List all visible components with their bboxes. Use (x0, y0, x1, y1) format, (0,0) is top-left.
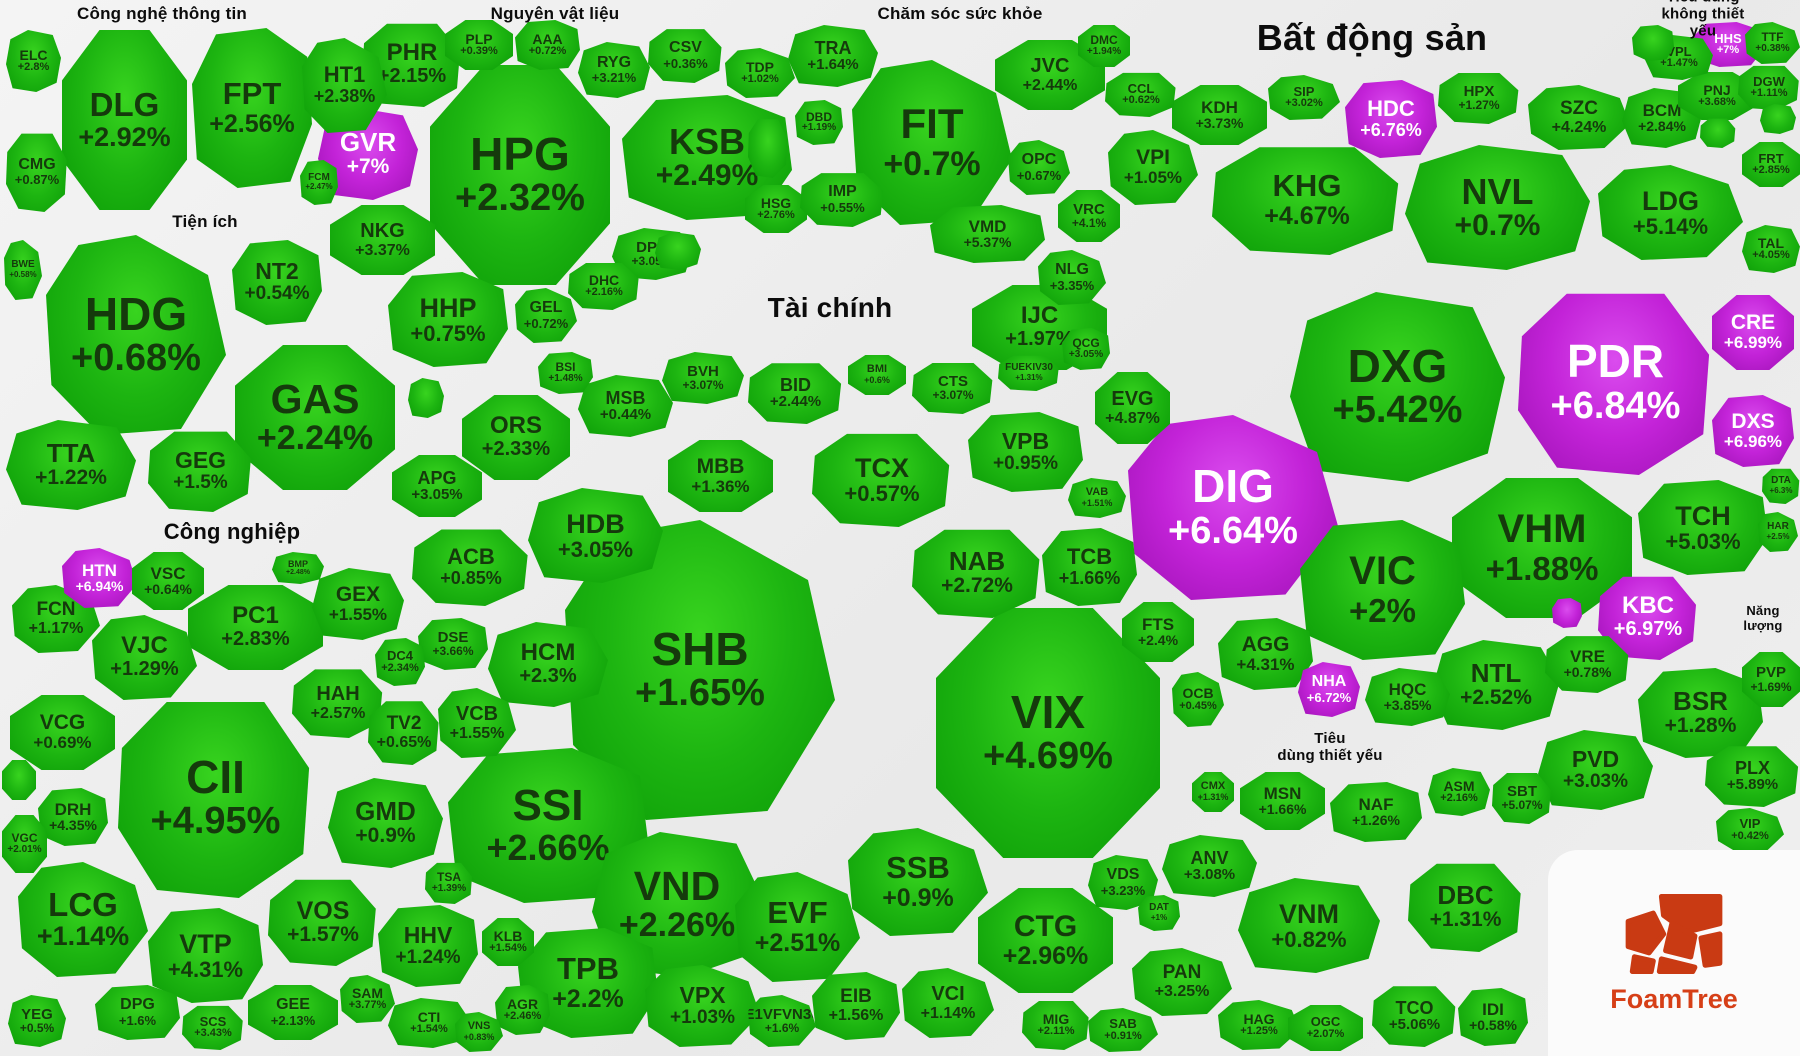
cell-change-pct: +2.84% (1638, 119, 1686, 134)
cell-NVL[interactable]: NVL+0.7% (1405, 145, 1590, 270)
cell-ticker: AAA (532, 32, 562, 47)
cell-change-pct: +1.02% (741, 74, 779, 86)
cell-change-pct: +1.31% (1430, 909, 1502, 932)
cell-change-pct: +7% (1717, 45, 1739, 57)
cell-change-pct: +1.5% (173, 473, 227, 494)
cell-OCB[interactable]: OCB+0.45% (1172, 672, 1224, 727)
cell-ticker: TTF (1762, 31, 1784, 43)
cell-change-pct: +0.42% (1731, 831, 1769, 843)
cell-TV2[interactable]: TV2+0.65% (368, 700, 440, 765)
cell-change-pct: +2.96% (1003, 943, 1089, 970)
cell-RYG[interactable]: RYG+3.21% (578, 42, 650, 98)
cell-change-pct: +4.87% (1105, 410, 1160, 427)
cell-ticker: GMD (355, 798, 416, 825)
cell-change-pct: +0.87% (15, 173, 59, 187)
cell-DBC[interactable]: DBC+1.31% (1408, 862, 1523, 952)
cell-AGG[interactable]: AGG+4.31% (1218, 618, 1313, 690)
cell-NAF[interactable]: NAF+1.26% (1330, 782, 1422, 842)
cell-filler[interactable] (655, 232, 701, 270)
cell-VOS[interactable]: VOS+1.57% (268, 878, 378, 966)
cell-change-pct: +6.64% (1168, 511, 1298, 552)
sector-label-1: Tiện ích (172, 212, 238, 232)
cell-HAG[interactable]: HAG+1.25% (1218, 1000, 1300, 1050)
cell-DXS[interactable]: DXS+6.96% (1712, 395, 1794, 467)
cell-SZC[interactable]: SZC+4.24% (1528, 85, 1630, 150)
cell-change-pct: +1.03% (670, 1008, 735, 1029)
cell-VIC[interactable]: VIC+2% (1300, 520, 1465, 660)
cell-HSG[interactable]: HSG+2.76% (745, 185, 807, 233)
cell-change-pct: +4.1% (1072, 217, 1106, 230)
cell-ticker: GEG (175, 449, 226, 473)
cell-TCH[interactable]: TCH+5.03% (1638, 480, 1768, 575)
cell-ticker: DXS (1731, 411, 1774, 433)
cell-HDC[interactable]: HDC+6.76% (1345, 80, 1437, 158)
cell-QCG[interactable]: QCG+3.05% (1062, 328, 1110, 370)
cell-ticker: VHM (1498, 509, 1587, 551)
cell-PVD[interactable]: PVD+3.03% (1538, 730, 1653, 810)
cell-TTF[interactable]: TTF+0.38% (1745, 22, 1800, 64)
cell-ticker: NTL (1471, 660, 1522, 687)
cell-VTP[interactable]: VTP+4.31% (148, 908, 263, 1003)
cell-SAM[interactable]: SAM+3.77% (340, 975, 395, 1023)
cell-ticker: SBT (1507, 784, 1537, 800)
cell-YEG[interactable]: YEG+0.5% (8, 995, 66, 1047)
cell-VPI[interactable]: VPI+1.05% (1108, 130, 1198, 205)
cell-GEX[interactable]: GEX+1.55% (312, 568, 404, 640)
cell-change-pct: +2.26% (619, 907, 735, 944)
cell-ticker: VIX (1011, 689, 1085, 737)
cell-NAB[interactable]: NAB+2.72% (912, 528, 1042, 618)
cell-DXG[interactable]: DXG+5.42% (1290, 292, 1505, 482)
cell-change-pct: +1.22% (35, 467, 107, 490)
cell-ticker: ELC (20, 48, 48, 63)
cell-change-pct: +1.55% (450, 725, 505, 742)
cell-change-pct: +5.07% (1501, 799, 1542, 812)
cell-VPB[interactable]: VPB+0.95% (968, 412, 1083, 492)
cell-change-pct: +4.31% (168, 958, 243, 982)
cell-DAT[interactable]: DAT+1% (1138, 895, 1180, 931)
cell-ticker: TRA (815, 39, 852, 58)
cell-HHV[interactable]: HHV+1.24% (378, 905, 478, 987)
cell-ticker: KHG (1273, 170, 1342, 202)
cell-change-pct: +1.64% (807, 57, 858, 73)
cell-ticker: TPB (557, 953, 619, 985)
cell-filler[interactable] (2, 760, 36, 800)
cell-change-pct: +2.72% (941, 575, 1013, 598)
cell-change-pct: +1.05% (1124, 169, 1182, 187)
cell-TDP[interactable]: TDP+1.02% (725, 48, 795, 98)
cell-E1VFVN30[interactable]: E1VFVN30+1.6% (748, 995, 816, 1047)
cell-ticker: MIG (1043, 1012, 1069, 1027)
cell-AGR[interactable]: AGR+2.46% (495, 985, 550, 1035)
cell-ACB[interactable]: ACB+0.85% (412, 528, 530, 606)
cell-change-pct: +1.26% (1352, 813, 1400, 828)
cell-VRC[interactable]: VRC+4.1% (1058, 190, 1120, 242)
cell-PDR[interactable]: PDR+6.84% (1518, 290, 1713, 475)
cell-change-pct: +1.17% (29, 620, 84, 637)
cell-NT2[interactable]: NT2+0.54% (232, 240, 322, 325)
cell-change-pct: +2.46% (504, 1011, 542, 1023)
cell-ticker: DBC (1437, 882, 1493, 909)
cell-ASM[interactable]: ASM+2.16% (1428, 768, 1490, 816)
cell-ticker: LCG (48, 888, 118, 922)
cell-ticker: HQC (1389, 681, 1427, 699)
cell-change-pct: +0.9% (355, 825, 415, 848)
sector-label-2: Nguyên vật liệu (491, 4, 620, 24)
sector-label-8: Năng lượng (1743, 603, 1782, 633)
cell-ticker: IMP (828, 184, 856, 201)
cell-PVP[interactable]: PVP+1.69% (1742, 652, 1800, 707)
cell-change-pct: +1.88% (1486, 551, 1599, 587)
cell-BID[interactable]: BID+2.44% (748, 362, 843, 424)
cell-filler[interactable] (1552, 598, 1582, 628)
cell-HAR[interactable]: HAR+2.5% (1758, 512, 1798, 552)
cell-ticker: TDP (746, 60, 774, 75)
cell-ticker: NVL (1462, 173, 1534, 210)
cell-ticker: MSN (1264, 785, 1302, 803)
cell-ELC[interactable]: ELC+2.8% (6, 30, 61, 92)
cell-PC1[interactable]: PC1+2.83% (188, 585, 323, 670)
cell-OPC[interactable]: OPC+0.67% (1008, 140, 1070, 195)
cell-ticker: HHV (404, 924, 453, 948)
cell-change-pct: +2.5% (1767, 533, 1790, 542)
cell-VSC[interactable]: VSC+0.64% (132, 552, 204, 610)
cell-ORS[interactable]: ORS+2.33% (462, 395, 570, 480)
cell-HTN[interactable]: HTN+6.94% (62, 548, 137, 608)
cell-PLP[interactable]: PLP+0.39% (445, 20, 513, 70)
cell-DMC[interactable]: DMC+1.94% (1078, 25, 1130, 67)
cell-SCS[interactable]: SCS+3.43% (182, 1005, 244, 1050)
cell-HPG[interactable]: HPG+2.32% (430, 65, 610, 285)
cell-KLB[interactable]: KLB+1.54% (482, 918, 534, 966)
cell-GMD[interactable]: GMD+0.9% (328, 778, 443, 868)
cell-filler[interactable] (1700, 118, 1736, 148)
cell-ticker: VJC (121, 634, 168, 659)
cell-GAS[interactable]: GAS+2.24% (235, 345, 395, 490)
cell-ticker: FIT (901, 102, 964, 146)
cell-SSB[interactable]: SSB+0.9% (848, 828, 988, 936)
cell-ticker: HHP (419, 294, 476, 322)
cell-HQC[interactable]: HQC+3.85% (1365, 668, 1450, 726)
cell-DSE[interactable]: DSE+3.66% (418, 618, 488, 670)
cell-ticker: PVD (1572, 748, 1619, 772)
cell-ticker: NKG (360, 221, 404, 242)
cell-change-pct: +2.8% (18, 62, 50, 74)
cell-BWE[interactable]: BWE+0.58% (4, 240, 42, 300)
cell-CRE[interactable]: CRE+6.99% (1712, 295, 1794, 370)
cell-change-pct: +5.06% (1389, 1017, 1440, 1033)
cell-DBD[interactable]: DBD+1.19% (795, 100, 843, 145)
cell-ticker: FTS (1142, 616, 1174, 634)
cell-DPG[interactable]: DPG+1.6% (95, 985, 180, 1040)
cell-ticker: CII (186, 754, 245, 802)
cell-change-pct: +3.08% (1184, 867, 1235, 883)
cell-FCM[interactable]: FCM+2.47% (300, 160, 338, 205)
cell-ticker: ACB (447, 546, 495, 569)
cell-ticker: FRT (1758, 152, 1783, 166)
cell-TAL[interactable]: TAL+4.05% (1742, 225, 1800, 273)
cell-ticker: CMG (18, 157, 55, 174)
cell-ticker: HT1 (324, 64, 366, 87)
cell-change-pct: +0.9% (882, 885, 954, 912)
cell-change-pct: +5.37% (964, 235, 1012, 250)
cell-ticker: VRE (1570, 648, 1605, 666)
cell-CTG[interactable]: CTG+2.96% (978, 888, 1113, 993)
cell-ticker: VSC (151, 565, 186, 583)
cell-ticker: VND (634, 865, 721, 908)
cell-change-pct: +1.25% (1240, 1026, 1278, 1038)
cell-VAB[interactable]: VAB+1.51% (1068, 478, 1126, 518)
cell-CMG[interactable]: CMG+0.87% (6, 132, 68, 212)
cell-IDI[interactable]: IDI+0.58% (1458, 988, 1528, 1046)
cell-change-pct: +3.05% (1069, 350, 1103, 361)
cell-NLG[interactable]: NLG+3.35% (1038, 250, 1106, 305)
cell-GEE[interactable]: GEE+2.13% (248, 985, 338, 1040)
cell-EIB[interactable]: EIB+1.56% (812, 972, 900, 1040)
cell-change-pct: +2.4% (1138, 633, 1178, 648)
cell-change-pct: +3.73% (1196, 116, 1244, 131)
cell-change-pct: +1.56% (829, 1007, 884, 1024)
cell-ticker: MSB (606, 389, 646, 408)
cell-KHG[interactable]: KHG+4.67% (1212, 145, 1402, 255)
cell-MIG[interactable]: MIG+2.11% (1022, 1000, 1090, 1050)
cell-KDH[interactable]: KDH+3.73% (1172, 85, 1267, 145)
cell-VNM[interactable]: VNM+0.82% (1238, 878, 1380, 973)
cell-change-pct: +1.65% (635, 673, 765, 714)
cell-VNS[interactable]: VNS+0.83% (455, 1012, 503, 1052)
cell-filler[interactable] (1760, 104, 1796, 134)
cell-ticker: SSI (513, 783, 584, 829)
cell-MSN[interactable]: MSN+1.66% (1240, 772, 1325, 830)
cell-DLG[interactable]: DLG+2.92% (62, 30, 187, 210)
cell-DC4[interactable]: DC4+2.34% (375, 638, 425, 686)
cell-HCM[interactable]: HCM+2.3% (488, 622, 608, 707)
cell-change-pct: +2.51% (755, 930, 841, 957)
cell-ticker: DHC (589, 273, 619, 288)
cell-change-pct: +2.24% (257, 420, 373, 457)
cell-change-pct: +2.16% (585, 287, 623, 299)
cell-change-pct: +3.02% (1285, 98, 1323, 110)
cell-ticker: DXG (1348, 343, 1448, 391)
cell-change-pct: +2.13% (271, 1014, 315, 1028)
cell-change-pct: +3.21% (592, 71, 636, 85)
treemap-canvas: FoamTree Công nghệ thông tinDLG+2.92%FPT… (0, 0, 1800, 1056)
cell-DTA[interactable]: DTA+6.3% (1762, 468, 1800, 504)
cell-change-pct: +2.11% (1037, 1026, 1074, 1038)
cell-PAN[interactable]: PAN+3.25% (1132, 948, 1232, 1016)
cell-change-pct: +1.29% (110, 659, 178, 681)
cell-FPT[interactable]: FPT+2.56% (192, 28, 312, 188)
cell-change-pct: +4.95% (151, 801, 281, 842)
cell-ticker: NAF (1359, 796, 1394, 814)
cell-ticker: TAL (1758, 236, 1784, 251)
cell-change-pct: +3.23% (1101, 884, 1145, 898)
cell-AAA[interactable]: AAA+0.72% (515, 20, 580, 70)
cell-CII[interactable]: CII+4.95% (118, 698, 313, 898)
cell-EVG[interactable]: EVG+4.87% (1095, 372, 1170, 444)
cell-change-pct: +1.31% (1015, 374, 1042, 383)
cell-BMI[interactable]: BMI+0.6% (848, 355, 906, 395)
cell-NKG[interactable]: NKG+3.37% (330, 205, 435, 275)
cell-change-pct: +0.75% (410, 322, 485, 346)
cell-ticker: TV2 (387, 714, 422, 734)
cell-change-pct: +0.38% (1755, 44, 1789, 55)
cell-ticker: DC4 (387, 649, 413, 663)
cell-change-pct: +3.85% (1384, 698, 1432, 713)
cell-change-pct: +2.32% (455, 178, 585, 219)
cell-CMX[interactable]: CMX+1.31% (1192, 772, 1234, 812)
cell-change-pct: +0.78% (1564, 665, 1612, 680)
cell-TRA[interactable]: TRA+1.64% (788, 25, 878, 87)
cell-change-pct: +0.64% (144, 582, 192, 597)
cell-VGC[interactable]: VGC+2.01% (2, 815, 47, 873)
cell-HHP[interactable]: HHP+0.75% (388, 272, 508, 367)
cell-change-pct: +3.43% (194, 1028, 232, 1040)
cell-ticker: VDS (1107, 867, 1140, 884)
cell-DRH[interactable]: DRH+4.35% (38, 788, 108, 846)
cell-ticker: OGC (1311, 1015, 1341, 1029)
cell-DGW[interactable]: DGW+1.11% (1738, 65, 1800, 110)
cell-change-pct: +0.62% (1122, 95, 1160, 107)
foamtree-logo-icon (1622, 892, 1726, 976)
cell-VJC[interactable]: VJC+1.29% (92, 615, 197, 700)
cell-ticker: AGG (1242, 634, 1290, 656)
cell-change-pct: +3.66% (432, 645, 473, 658)
foamtree-logo[interactable]: FoamTree (1548, 850, 1800, 1056)
cell-ticker: DPG (120, 997, 155, 1014)
cell-change-pct: +2.66% (486, 829, 609, 868)
cell-NTL[interactable]: NTL+2.52% (1432, 640, 1560, 730)
cell-ticker: VMD (969, 218, 1007, 236)
cell-change-pct: +3.05% (411, 487, 462, 503)
cell-ticker: CTI (418, 1010, 441, 1025)
cell-CTS[interactable]: CTS+3.07% (912, 362, 994, 414)
cell-change-pct: +0.36% (663, 57, 707, 71)
cell-CSV[interactable]: CSV+0.36% (648, 28, 723, 83)
cell-ticker: QCG (1072, 337, 1099, 349)
cell-VMD[interactable]: VMD+5.37% (930, 205, 1045, 263)
cell-ticker: OCB (1182, 686, 1213, 701)
cell-ticker: DRH (55, 801, 92, 819)
sector-label-5: Tiêu dùng không thiết yếu (1655, 0, 1752, 40)
cell-CCL[interactable]: CCL+0.62% (1105, 72, 1177, 117)
cell-ticker: PDR (1567, 338, 1664, 386)
cell-LCG[interactable]: LCG+1.14% (18, 862, 148, 977)
cell-TCB[interactable]: TCB+1.66% (1042, 528, 1137, 606)
cell-change-pct: +2.47% (305, 183, 332, 192)
cell-change-pct: +6.84% (1551, 386, 1681, 427)
cell-ANV[interactable]: ANV+3.08% (1162, 835, 1257, 897)
cell-VCG[interactable]: VCG+0.69% (10, 695, 115, 770)
cell-ticker: VOS (297, 898, 350, 924)
cell-change-pct: +0.44% (600, 407, 651, 423)
cell-change-pct: +0.67% (1017, 169, 1061, 183)
cell-ticker: PVP (1756, 665, 1786, 681)
cell-ticker: FCN (36, 600, 75, 620)
cell-ticker: ASM (1443, 779, 1474, 794)
cell-APG[interactable]: APG+3.05% (392, 455, 482, 517)
cell-LDG[interactable]: LDG+5.14% (1598, 165, 1743, 260)
cell-MSB[interactable]: MSB+0.44% (578, 375, 673, 437)
cell-FRT[interactable]: FRT+2.85% (1742, 142, 1800, 187)
cell-ticker: HPG (470, 131, 570, 179)
cell-ticker: AGR (507, 997, 538, 1012)
cell-change-pct: +4.35% (49, 818, 97, 833)
cell-ticker: TCO (1396, 999, 1434, 1018)
cell-change-pct: +1% (1151, 914, 1167, 923)
cell-VIP[interactable]: VIP+0.42% (1716, 808, 1784, 852)
cell-change-pct: +1.66% (1059, 569, 1121, 588)
cell-HDB[interactable]: HDB+3.05% (528, 488, 663, 583)
cell-ticker: HSG (761, 196, 791, 211)
cell-ticker: VCB (456, 704, 498, 725)
cell-FTS[interactable]: FTS+2.4% (1122, 602, 1194, 662)
cell-ticker: HDB (566, 510, 625, 538)
cell-change-pct: +2.44% (1023, 77, 1078, 94)
cell-ticker: JVC (1031, 56, 1070, 77)
cell-BMP[interactable]: BMP+2.48% (272, 552, 324, 584)
cell-change-pct: +1.57% (287, 924, 359, 947)
cell-GEL[interactable]: GEL+0.72% (515, 288, 577, 343)
cell-change-pct: +0.83% (464, 1033, 495, 1043)
cell-SIP[interactable]: SIP+3.02% (1268, 75, 1340, 120)
cell-ticker: NLG (1055, 262, 1089, 279)
cell-ticker: SSB (886, 852, 950, 884)
cell-BVH[interactable]: BVH+3.07% (662, 352, 744, 404)
cell-ticker: FPT (223, 78, 282, 110)
cell-EVF[interactable]: EVF+2.51% (735, 872, 860, 982)
cell-change-pct: +5.03% (1665, 530, 1740, 554)
cell-ticker: KDH (1201, 99, 1238, 117)
cell-TCX[interactable]: TCX+0.57% (812, 432, 952, 527)
cell-NHA[interactable]: NHA+6.72% (1298, 662, 1360, 717)
cell-ticker: RYG (597, 55, 631, 72)
cell-change-pct: +0.82% (1271, 928, 1346, 952)
cell-change-pct: +6.72% (1307, 691, 1351, 705)
cell-ticker: BVH (687, 364, 719, 380)
cell-TTA[interactable]: TTA+1.22% (6, 420, 136, 510)
cell-BSI[interactable]: BSI+1.48% (538, 352, 593, 394)
cell-ticker: PAN (1163, 963, 1202, 983)
cell-HPX[interactable]: HPX+1.27% (1438, 72, 1520, 124)
cell-ticker: HDC (1367, 98, 1415, 121)
cell-change-pct: +0.39% (460, 46, 498, 58)
cell-OGC[interactable]: OGC+2.07% (1288, 1005, 1363, 1051)
cell-change-pct: +6.94% (76, 579, 124, 594)
cell-VPX[interactable]: VPX+1.03% (645, 965, 760, 1047)
cell-ticker: CCL (1128, 82, 1155, 96)
cell-change-pct: +5.89% (1727, 777, 1778, 793)
cell-PLX[interactable]: PLX+5.89% (1705, 745, 1800, 807)
cell-HDG[interactable]: HDG+0.68% (46, 235, 226, 435)
cell-VCI[interactable]: VCI+1.14% (902, 968, 994, 1038)
cell-change-pct: +0.54% (245, 284, 310, 305)
cell-SAB[interactable]: SAB+0.91% (1088, 1008, 1158, 1052)
cell-ticker: CTG (1014, 911, 1077, 942)
cell-ticker: TSA (437, 871, 461, 883)
cell-filler[interactable] (408, 378, 444, 418)
cell-ticker: VPX (679, 984, 725, 1008)
cell-MBB[interactable]: MBB+1.36% (668, 440, 773, 512)
cell-TCO[interactable]: TCO+5.06% (1372, 985, 1457, 1047)
cell-ticker: SAB (1109, 1017, 1136, 1031)
cell-change-pct: +1.19% (802, 123, 836, 134)
cell-change-pct: +3.05% (558, 538, 633, 562)
cell-ticker: DLG (90, 88, 160, 122)
cell-change-pct: +0.55% (820, 201, 864, 215)
cell-ticker: ORS (490, 414, 542, 439)
cell-ticker: VGC (11, 832, 37, 844)
